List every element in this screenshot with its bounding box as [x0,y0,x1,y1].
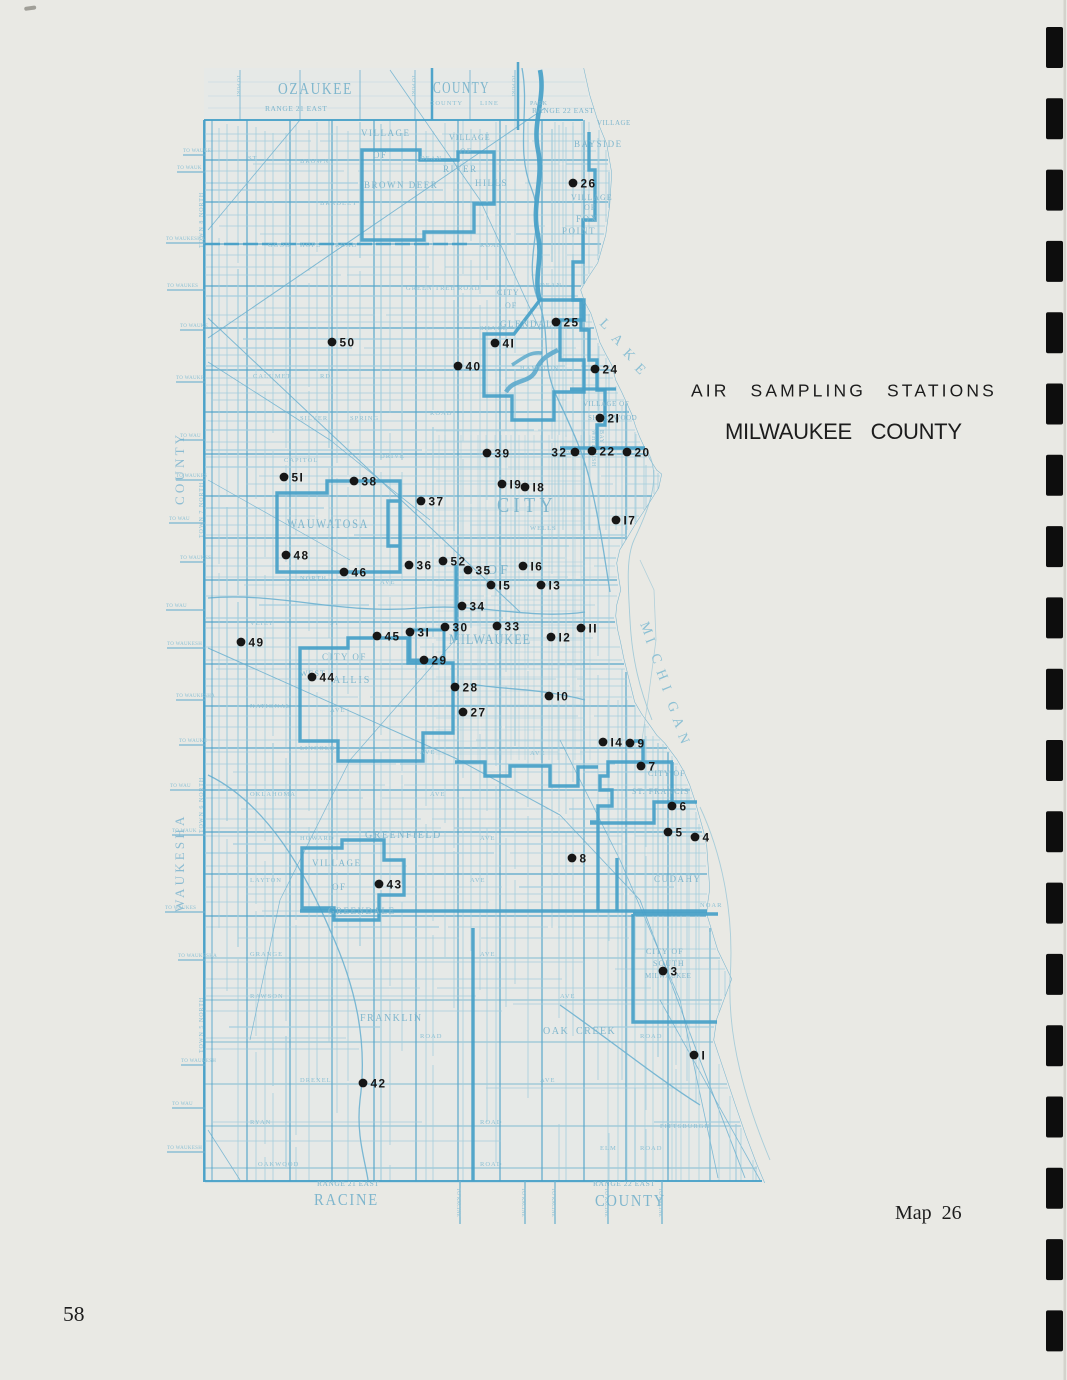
svg-text:OF: OF [460,147,472,156]
svg-text:RANGE 21 EAST: RANGE 21 EAST [317,1179,379,1188]
svg-text:RD: RD [320,373,331,380]
svg-text:SILVER: SILVER [300,415,328,422]
svg-text:34: 34 [470,599,486,613]
svg-text:OF: OF [332,882,347,892]
svg-text:ELM: ELM [600,1145,617,1152]
svg-text:TO WAUKE: TO WAUKE [183,149,211,154]
svg-text:VILLAGE: VILLAGE [597,119,631,127]
svg-text:CREEK: CREEK [576,1026,616,1037]
svg-text:45: 45 [385,629,401,643]
svg-text:RANGE 22 EAST: RANGE 22 EAST [532,106,594,115]
svg-text:BROWN DEER: BROWN DEER [364,180,438,190]
svg-text:MILWAUKEE: MILWAUKEE [645,972,691,980]
svg-text:48: 48 [294,548,310,562]
svg-text:5I: 5I [292,470,305,484]
svg-text:3: 3 [671,964,679,978]
svg-text:20: 20 [635,445,651,459]
svg-text:OAKWOOD: OAKWOOD [258,1161,299,1168]
svg-text:BAY: BAY [598,430,604,444]
svg-text:COUNTY: COUNTY [172,432,187,505]
svg-text:OF: OF [505,301,517,310]
svg-text:TO RACINE: TO RACINE [657,1188,662,1217]
svg-text:TO WAUKESHA: TO WAUKESHA [178,954,217,959]
svg-text:AVE: AVE [480,835,496,842]
svg-text:OKLAHOMA: OKLAHOMA [250,791,296,798]
svg-text:GLENDALE: GLENDALE [500,319,560,329]
svg-text:AVE: AVE [380,579,396,586]
svg-text:TO PORT: TO PORT [510,75,515,97]
svg-text:TO RACINE: TO RACINE [520,1188,525,1217]
svg-text:AVE: AVE [330,707,346,714]
svg-text:22: 22 [600,444,616,458]
svg-text:30: 30 [453,620,469,634]
svg-text:TO PORT: TO PORT [235,75,240,97]
svg-text:I4: I4 [611,735,624,749]
svg-text:RIVER: RIVER [443,164,478,174]
svg-text:29: 29 [432,653,448,667]
svg-text:AIR SAMPLING STATIONS: AIR SAMPLING STATIONS [691,381,997,401]
svg-text:ROAD: ROAD [430,410,452,417]
svg-text:DEAN: DEAN [420,155,442,162]
svg-text:TOWN 7 NORTH: TOWN 7 NORTH [199,482,205,538]
svg-text:TO WAU: TO WAU [169,517,190,522]
svg-text:40: 40 [466,359,482,373]
svg-text:AVE: AVE [420,749,436,756]
svg-text:SOUTH: SOUTH [653,959,685,968]
svg-text:SILVER: SILVER [480,325,508,332]
svg-text:VLIET: VLIET [250,620,274,627]
svg-text:WELLS: WELLS [530,525,557,532]
svg-text:HAMPTON: HAMPTON [520,365,559,372]
svg-text:GREEN TREE ROAD: GREEN TREE ROAD [406,285,480,292]
svg-text:27: 27 [471,705,487,719]
svg-text:CAPITOL: CAPITOL [284,457,318,464]
svg-text:BAYSIDE: BAYSIDE [574,139,623,149]
svg-text:RANGE 22 EAST: RANGE 22 EAST [593,1179,655,1188]
svg-text:AVE: AVE [430,791,446,798]
svg-text:3I: 3I [418,625,431,639]
svg-text:TO WAUKES: TO WAUKES [165,906,196,911]
svg-text:TO WAU: TO WAU [172,1102,193,1107]
svg-text:GREENDALE: GREENDALE [328,906,396,916]
svg-text:NORTH: NORTH [300,575,327,582]
svg-text:DREXEL: DREXEL [300,1077,332,1084]
svg-text:TO RACINE: TO RACINE [550,1188,555,1217]
svg-text:ROAD: ROAD [640,1145,662,1152]
svg-text:TO WAUKESHA: TO WAUKESHA [176,694,215,699]
svg-text:TO WAUK: TO WAUK [177,166,202,171]
svg-text:GOOD: GOOD [268,242,291,249]
svg-text:LAYTON: LAYTON [250,877,282,884]
svg-text:RAWSON: RAWSON [250,993,284,1000]
svg-text:TO WAUKESH: TO WAUKESH [167,1146,202,1151]
svg-text:I8: I8 [533,480,546,494]
svg-text:RANGE 21 EAST: RANGE 21 EAST [265,104,327,113]
svg-text:ROAD: ROAD [335,242,357,249]
svg-text:25: 25 [564,315,580,329]
svg-text:36: 36 [417,558,433,572]
svg-text:VILLAGE: VILLAGE [361,128,411,138]
svg-text:CITY: CITY [497,288,520,297]
svg-text:HILLS: HILLS [475,178,508,188]
svg-text:7: 7 [649,759,657,773]
svg-text:58: 58 [63,1302,85,1326]
svg-text:9: 9 [638,736,646,750]
svg-text:35: 35 [476,563,492,577]
svg-text:38: 38 [362,474,378,488]
svg-text:TO RACINE: TO RACINE [455,1188,460,1217]
svg-text:TO WAUKES: TO WAUKES [167,284,198,289]
svg-text:ROAD: ROAD [480,1119,502,1126]
svg-text:MILWAUKEE COUNTY: MILWAUKEE COUNTY [725,419,965,444]
svg-text:49: 49 [249,635,265,649]
svg-text:43: 43 [387,877,403,891]
svg-text:CALUMET: CALUMET [253,373,291,380]
svg-text:OF: OF [373,150,388,160]
svg-text:HOPE: HOPE [300,242,321,249]
svg-text:VILLAGE: VILLAGE [312,858,362,868]
svg-text:CITY OF: CITY OF [322,652,367,662]
svg-text:42: 42 [371,1076,387,1090]
svg-text:ROAD: ROAD [480,1161,502,1168]
svg-text:I2: I2 [559,630,572,644]
svg-text:GREENFIELD: GREENFIELD [365,830,442,841]
svg-text:TO RACINE: TO RACINE [603,1188,608,1217]
svg-text:TO WAUKESH: TO WAUKESH [181,1059,216,1064]
svg-text:28: 28 [463,680,479,694]
svg-text:TO WAU: TO WAU [166,604,187,609]
svg-text:NOAR: NOAR [700,902,722,909]
svg-text:ST. FRANCIS: ST. FRANCIS [632,787,690,796]
svg-text:ST: ST [248,155,258,162]
svg-text:CITY: CITY [497,493,557,517]
svg-text:TO PORT: TO PORT [410,75,415,97]
svg-text:4I: 4I [503,336,516,350]
svg-text:ROAD: ROAD [420,1033,442,1040]
svg-text:ST: ST [330,620,340,627]
svg-text:TO WAUK: TO WAUK [172,829,197,834]
svg-text:II: II [589,621,599,635]
svg-text:AVE: AVE [560,993,576,1000]
svg-text:VILLAGE: VILLAGE [571,193,613,202]
svg-text:AVE: AVE [530,750,546,757]
svg-text:AVE: AVE [540,1077,556,1084]
svg-text:TO WAUKESH: TO WAUKESH [167,642,202,647]
svg-text:TO WAU: TO WAU [180,434,201,439]
svg-text:50: 50 [340,335,356,349]
svg-text:I3: I3 [549,578,562,592]
svg-text:TO WAU: TO WAU [170,784,191,789]
svg-text:RYAN: RYAN [250,1119,271,1126]
svg-text:4: 4 [703,830,711,844]
svg-text:39: 39 [495,446,511,460]
svg-text:ROAD: ROAD [640,1033,662,1040]
svg-text:BROWN: BROWN [300,158,329,165]
svg-text:LINE: LINE [480,100,499,107]
svg-text:POINT: POINT [562,226,596,236]
svg-text:I5: I5 [499,578,512,592]
svg-text:24: 24 [603,362,619,376]
svg-text:I0: I0 [557,689,570,703]
svg-text:BRADLEY: BRADLEY [320,200,358,207]
svg-text:LINCOLN: LINCOLN [300,745,336,752]
svg-text:FRANKLIN: FRANKLIN [360,1013,423,1024]
svg-text:33: 33 [505,619,521,633]
svg-text:NATIONAL: NATIONAL [250,703,291,710]
svg-text:VILLAGE OF: VILLAGE OF [583,400,629,408]
svg-text:26: 26 [581,176,597,190]
svg-text:5: 5 [676,825,684,839]
svg-text:AVE: AVE [480,951,496,958]
svg-text:DRIVE: DRIVE [380,453,405,460]
svg-text:GRANGE: GRANGE [250,951,283,958]
svg-text:TO WAUKESHA: TO WAUKESHA [166,237,205,242]
svg-text:52: 52 [451,554,467,568]
svg-text:TO WAUKES: TO WAUKES [180,556,211,561]
svg-text:COUNTY: COUNTY [433,78,490,97]
svg-text:I7: I7 [624,513,637,527]
svg-text:32: 32 [551,445,567,459]
svg-text:AVE: AVE [470,877,486,884]
svg-text:VILLAGE: VILLAGE [449,133,491,142]
svg-text:I: I [702,1048,707,1062]
svg-text:OAK: OAK [543,1026,569,1037]
svg-text:PITTSBURGH: PITTSBURGH [660,1123,710,1130]
svg-text:PARK: PARK [530,101,548,107]
svg-text:TO WAUKE: TO WAUKE [180,324,208,329]
svg-text:OZAUKEE: OZAUKEE [278,79,353,98]
svg-text:HOWARD: HOWARD [300,835,335,842]
svg-text:TO WAUKE: TO WAUKE [176,376,204,381]
svg-text:6: 6 [680,799,688,813]
svg-text:Map 26: Map 26 [895,1202,962,1224]
svg-text:SPRING: SPRING [350,415,379,422]
svg-text:DEAN: DEAN [540,282,562,289]
svg-text:ROAD: ROAD [480,242,502,249]
svg-text:TO WAUKE: TO WAUKE [179,739,207,744]
svg-text:I6: I6 [531,559,544,573]
svg-text:8: 8 [580,851,588,865]
svg-text:WAUWATOSA: WAUWATOSA [287,517,369,531]
svg-text:RACINE: RACINE [314,1190,379,1209]
svg-text:CITY OF: CITY OF [646,947,684,956]
svg-text:46: 46 [352,565,368,579]
svg-text:I9: I9 [510,477,523,491]
svg-text:2I: 2I [608,411,621,425]
svg-text:TO WAUKES: TO WAUKES [176,474,207,479]
svg-text:ALLIS: ALLIS [333,675,371,686]
svg-text:CUDAHY: CUDAHY [654,874,702,884]
svg-text:37: 37 [429,494,445,508]
svg-text:44: 44 [320,670,336,684]
svg-text:FOX: FOX [576,214,599,224]
svg-text:COUNTY: COUNTY [430,100,463,107]
svg-text:OF: OF [584,203,596,212]
svg-text:TOWN 5 NORTH: TOWN 5 NORTH [199,997,205,1053]
svg-text:TOWN 6 NORTH: TOWN 6 NORTH [199,777,205,833]
